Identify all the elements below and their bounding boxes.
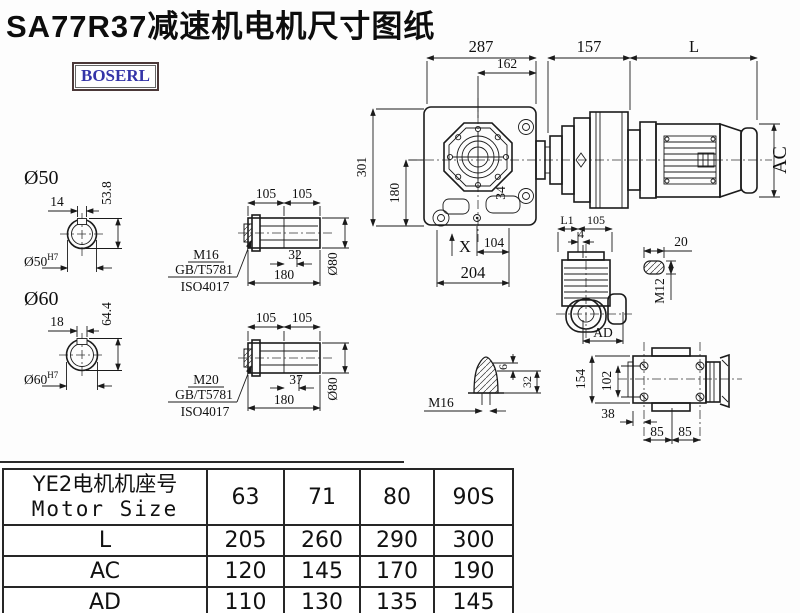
shaft60-detail: Ø60 18 64.4 Ø60H7 bbox=[24, 288, 122, 390]
label-x: X bbox=[459, 237, 471, 256]
m20-std-iso: ISO4017 bbox=[181, 404, 230, 419]
m20-std-gb: GB/T5781 bbox=[175, 387, 233, 402]
table-header-row: YE2电机机座号 Motor Size 63 71 80 90S bbox=[3, 469, 513, 525]
dim-AC: AC bbox=[769, 146, 791, 174]
shaft50-detail: Ø50 14 53.8 Ø50H7 bbox=[24, 167, 122, 272]
shaft60-label: Ø60 bbox=[24, 288, 58, 310]
main-dimensions: 287 162 157 L 301 180 X bbox=[354, 37, 791, 287]
gearbox-flange bbox=[444, 123, 512, 191]
shaft50-keyway bbox=[78, 219, 87, 225]
dim-104: 104 bbox=[484, 235, 505, 250]
dim-M12: M12 bbox=[652, 278, 667, 304]
m20-bolt-head bbox=[244, 349, 252, 367]
dim-32: 32 bbox=[288, 247, 302, 262]
AD-90S: 145 bbox=[434, 587, 513, 613]
dim-301: 301 bbox=[354, 157, 369, 177]
shaft60-keyway bbox=[77, 339, 87, 345]
dim-37: 37 bbox=[289, 372, 303, 387]
dim-dia80a: Ø80 bbox=[325, 252, 340, 275]
plug-dome bbox=[474, 357, 498, 393]
dim-14: 14 bbox=[50, 194, 64, 209]
AC-80: 170 bbox=[360, 556, 434, 587]
dim-180a: 180 bbox=[274, 267, 295, 282]
AC-63: 120 bbox=[207, 556, 284, 587]
row-label-AD: AD bbox=[3, 587, 207, 613]
dim-102: 102 bbox=[599, 371, 614, 391]
dim-64.4: 64.4 bbox=[99, 302, 114, 326]
dim-dia80b: Ø80 bbox=[325, 377, 340, 400]
m16-std-gb: GB/T5781 bbox=[175, 262, 233, 277]
col-size-71: 71 bbox=[284, 469, 360, 525]
L-90S: 300 bbox=[434, 525, 513, 556]
row-label-AC: AC bbox=[3, 556, 207, 587]
table-row-AC: AC 120 145 170 190 bbox=[3, 556, 513, 587]
top-view-bolt-holes bbox=[640, 362, 704, 401]
dim-105a: 105 bbox=[256, 186, 277, 201]
AC-71: 145 bbox=[284, 556, 360, 587]
motor-dimension-table: YE2电机机座号 Motor Size 63 71 80 90S L 205 2… bbox=[2, 468, 514, 613]
dim-85a: 85 bbox=[650, 424, 664, 439]
shaft50-label: Ø50 bbox=[24, 167, 58, 189]
dim-287: 287 bbox=[469, 37, 494, 56]
dim-105c: 105 bbox=[256, 310, 277, 325]
L-63: 205 bbox=[207, 525, 284, 556]
dim-180: 180 bbox=[387, 183, 402, 204]
dim-4: 4 bbox=[578, 227, 584, 241]
main-view: 287 162 157 L 301 180 X bbox=[354, 37, 791, 287]
header-cn: YE2电机机座号 bbox=[4, 472, 206, 497]
dim-162: 162 bbox=[497, 56, 517, 71]
dim-L1: L1 bbox=[560, 213, 573, 227]
dim-34: 34 bbox=[493, 186, 508, 200]
dim-32b: 32 bbox=[520, 376, 534, 388]
dim-180b: 180 bbox=[274, 392, 295, 407]
key-detail: 20 M12 bbox=[644, 234, 692, 304]
table-row-AD: AD 110 130 135 145 bbox=[3, 587, 513, 613]
shaft50-bore-label: Ø50H7 bbox=[24, 252, 59, 269]
m16-bolt-head bbox=[244, 224, 252, 242]
dim-20: 20 bbox=[674, 234, 688, 249]
plug-detail: M16 6 32 bbox=[424, 354, 541, 411]
plug-thread-label: M16 bbox=[428, 395, 454, 410]
L-80: 290 bbox=[360, 525, 434, 556]
dim-105e: 105 bbox=[587, 213, 605, 227]
AC-90S: 190 bbox=[434, 556, 513, 587]
dim-204: 204 bbox=[461, 263, 486, 282]
col-size-80: 80 bbox=[360, 469, 434, 525]
row-label-L: L bbox=[3, 525, 207, 556]
drawing-page: SA77R37减速机电机尺寸图纸 BOSERL bbox=[0, 0, 800, 613]
m20-thread-label: M20 bbox=[193, 372, 219, 387]
dim-105d: 105 bbox=[292, 310, 313, 325]
dim-38: 38 bbox=[601, 406, 615, 421]
dim-157: 157 bbox=[577, 37, 602, 56]
AD-63: 110 bbox=[207, 587, 284, 613]
shaft60-bore-label: Ø60H7 bbox=[24, 370, 59, 387]
top-view: 154 102 38 85 85 bbox=[573, 342, 742, 444]
header-en: Motor Size bbox=[4, 497, 206, 522]
dim-6: 6 bbox=[496, 364, 510, 370]
m16-thread-label: M16 bbox=[193, 247, 219, 262]
gearbox-lobes bbox=[519, 120, 551, 204]
dim-53.8: 53.8 bbox=[99, 181, 114, 205]
sleeve-m16-detail: 105 105 32 180 Ø80 M16 GB/T5781 ISO4017 bbox=[168, 186, 349, 294]
L-71: 260 bbox=[284, 525, 360, 556]
dim-85b: 85 bbox=[678, 424, 692, 439]
col-size-90S: 90S bbox=[434, 469, 513, 525]
dim-L: L bbox=[689, 37, 699, 56]
sleeve-m20-detail: 105 105 37 180 Ø80 M20 GB/T5781 ISO4017 bbox=[168, 310, 349, 419]
table-header-motor-size: YE2电机机座号 Motor Size bbox=[3, 469, 207, 525]
dim-154: 154 bbox=[573, 369, 588, 390]
side-view: L1 105 4 AD bbox=[556, 213, 632, 344]
col-size-63: 63 bbox=[207, 469, 284, 525]
AD-71: 130 bbox=[284, 587, 360, 613]
dim-105b: 105 bbox=[292, 186, 313, 201]
dim-AD: AD bbox=[593, 325, 613, 340]
m16-std-iso: ISO4017 bbox=[181, 279, 230, 294]
AD-80: 135 bbox=[360, 587, 434, 613]
table-row-L: L 205 260 290 300 bbox=[3, 525, 513, 556]
dim-18: 18 bbox=[50, 314, 64, 329]
